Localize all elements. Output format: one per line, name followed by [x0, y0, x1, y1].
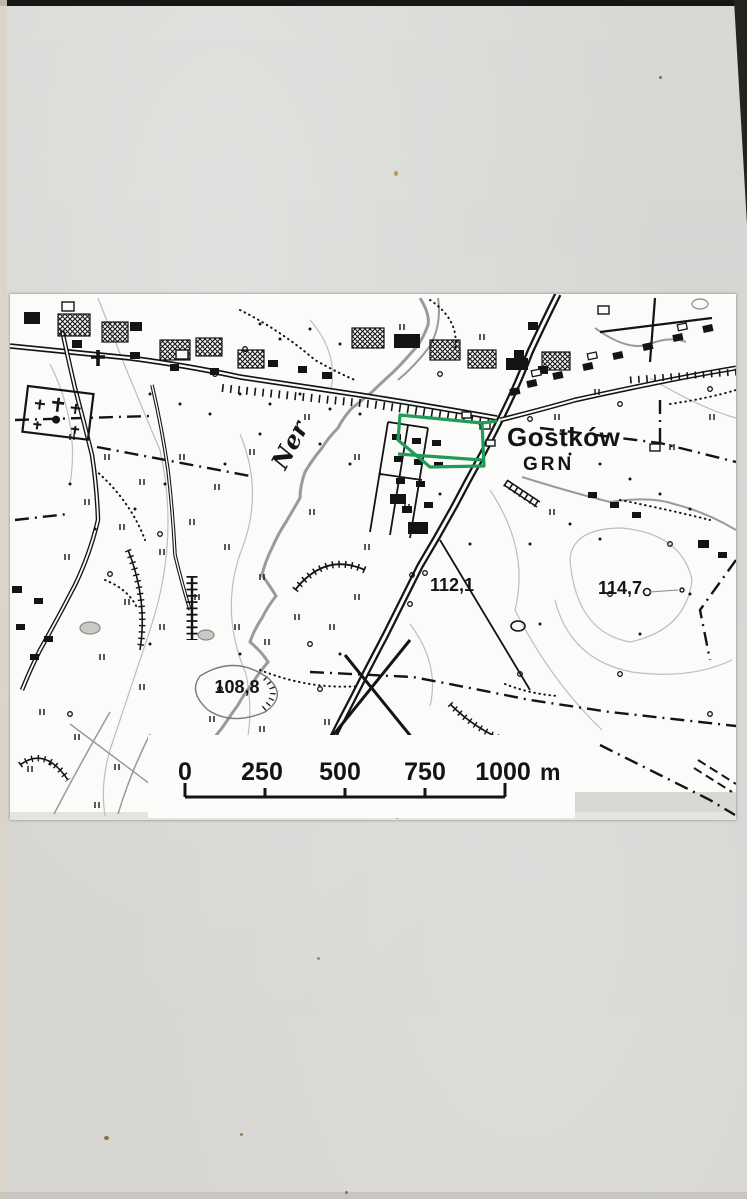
scale-label-0: 0 — [178, 758, 192, 786]
town-label: Gostków — [507, 422, 621, 452]
scale-bar: 0 250 500 750 1000 m — [148, 735, 575, 818]
scale-label-500: 500 — [319, 758, 361, 786]
scale-unit-label: m — [540, 759, 560, 785]
scanned-book-page: { "map": { "town_label": "Gostków", "mun… — [0, 0, 747, 1199]
paper-speck — [104, 1136, 109, 1140]
scale-label-1000: 1000 — [475, 758, 531, 786]
paper-speck — [659, 76, 662, 79]
paper-speck — [394, 171, 398, 176]
scale-label-750: 750 — [404, 758, 446, 786]
paper-speck — [345, 1191, 348, 1194]
paper-speck — [317, 957, 320, 960]
paper-speck — [240, 1133, 243, 1136]
municipality-label: GRN — [523, 454, 574, 475]
page-left-edge — [0, 0, 7, 1199]
map-photograph: Gostków GRN Ner 112,1 114,7 108,8 0 250 … — [10, 294, 736, 820]
elevation-108-label: 108,8 — [214, 677, 259, 697]
page-bottom-edge — [0, 1192, 747, 1199]
topographic-map: Gostków GRN Ner 112,1 114,7 108,8 0 250 … — [10, 294, 736, 820]
elevation-114-label: 114,7 — [598, 578, 642, 598]
book-binding-edge — [0, 0, 747, 6]
elevation-112-label: 112,1 — [430, 575, 474, 595]
scale-label-250: 250 — [241, 758, 283, 786]
